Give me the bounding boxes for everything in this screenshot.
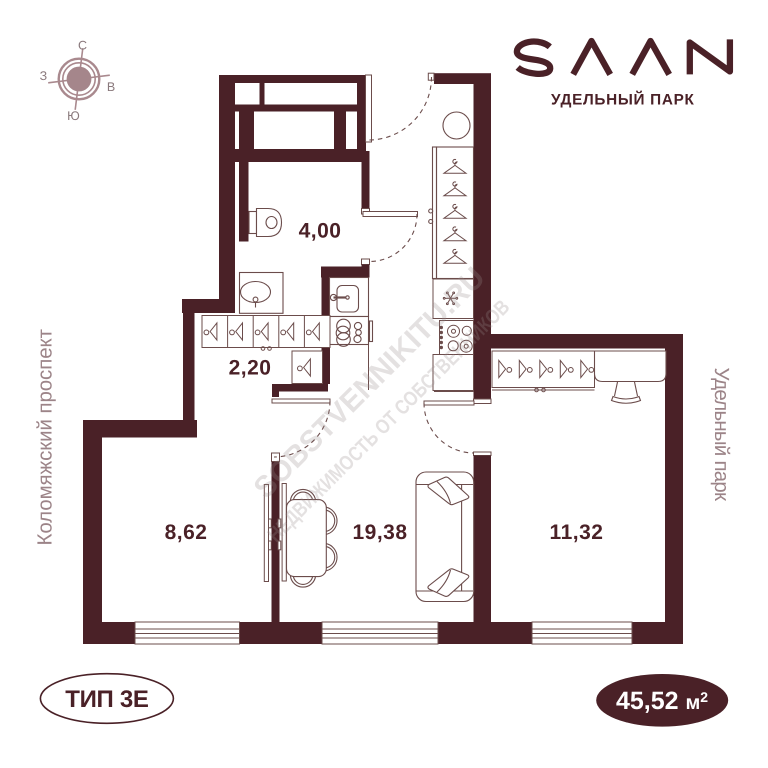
svg-text:ТИП 3Е: ТИП 3Е [65,686,149,713]
svg-text:8,62: 8,62 [165,521,208,544]
svg-text:Удельный парк: Удельный парк [710,368,733,503]
svg-text:19,38: 19,38 [352,521,407,544]
svg-text:2,20: 2,20 [229,357,272,380]
svg-text:Коломяжский проспект: Коломяжский проспект [34,328,57,545]
svg-text:45,52 м2: 45,52 м2 [616,687,708,715]
svg-text:11,32: 11,32 [550,521,604,544]
svg-text:4,00: 4,00 [299,220,342,243]
svg-text:УДЕЛЬНЫЙ ПАРК: УДЕЛЬНЫЙ ПАРК [551,91,695,109]
svg-text:В: В [107,80,115,94]
svg-text:З: З [40,69,48,83]
svg-text:С: С [78,39,87,53]
svg-text:Ю: Ю [67,109,80,123]
